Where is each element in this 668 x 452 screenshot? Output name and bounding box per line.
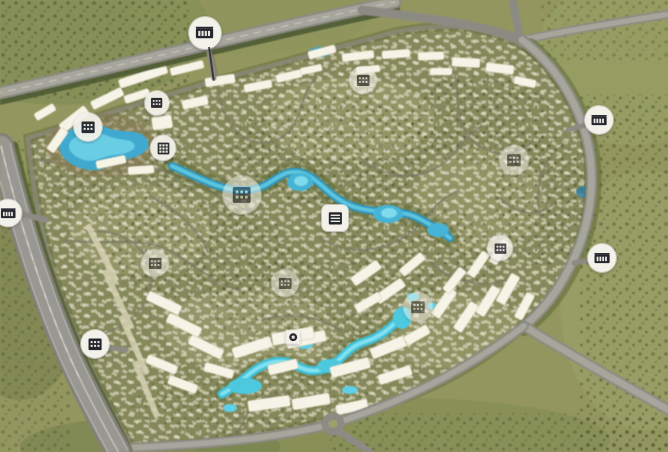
grid-icon xyxy=(154,139,172,157)
gate-icon xyxy=(193,21,216,44)
amenity-marker-7[interactable] xyxy=(142,250,169,277)
gate-icon xyxy=(0,203,18,222)
amenity-marker-10[interactable] xyxy=(488,236,513,261)
building-icon xyxy=(78,117,98,137)
lines-icon xyxy=(326,209,345,228)
amenity-marker-1[interactable] xyxy=(145,91,169,115)
gate-icon xyxy=(589,110,609,130)
dot-icon xyxy=(288,332,297,341)
clubhouse-marker[interactable] xyxy=(74,113,102,141)
building-icon xyxy=(491,239,509,257)
building-icon xyxy=(85,334,105,354)
building-icon xyxy=(145,253,164,272)
east-north-gate-marker[interactable] xyxy=(585,106,613,134)
east-south-gate-marker[interactable] xyxy=(588,244,616,272)
building-icon xyxy=(275,273,294,292)
amenity-marker-6[interactable] xyxy=(500,146,529,175)
amenity-marker-4[interactable] xyxy=(322,205,348,231)
amenity-marker-5[interactable] xyxy=(350,67,377,94)
amenity-marker-3[interactable] xyxy=(223,176,261,214)
markers-layer xyxy=(0,0,668,452)
west-gate-marker[interactable] xyxy=(0,200,22,227)
building-icon xyxy=(228,181,255,208)
building-icon xyxy=(148,94,165,111)
south-gate-marker[interactable] xyxy=(81,330,109,358)
pool-deck-marker[interactable] xyxy=(287,331,300,344)
building-icon xyxy=(353,70,372,89)
gate-icon xyxy=(592,248,612,268)
master-plan-screenshot xyxy=(0,0,668,452)
north-gate-marker[interactable] xyxy=(189,17,221,49)
amenity-marker-8[interactable] xyxy=(272,270,299,297)
building-icon xyxy=(504,150,525,171)
building-icon xyxy=(408,297,429,318)
marker-pin-stem xyxy=(208,47,215,81)
amenity-marker-2[interactable] xyxy=(151,136,176,161)
amenity-marker-9[interactable] xyxy=(404,293,433,322)
